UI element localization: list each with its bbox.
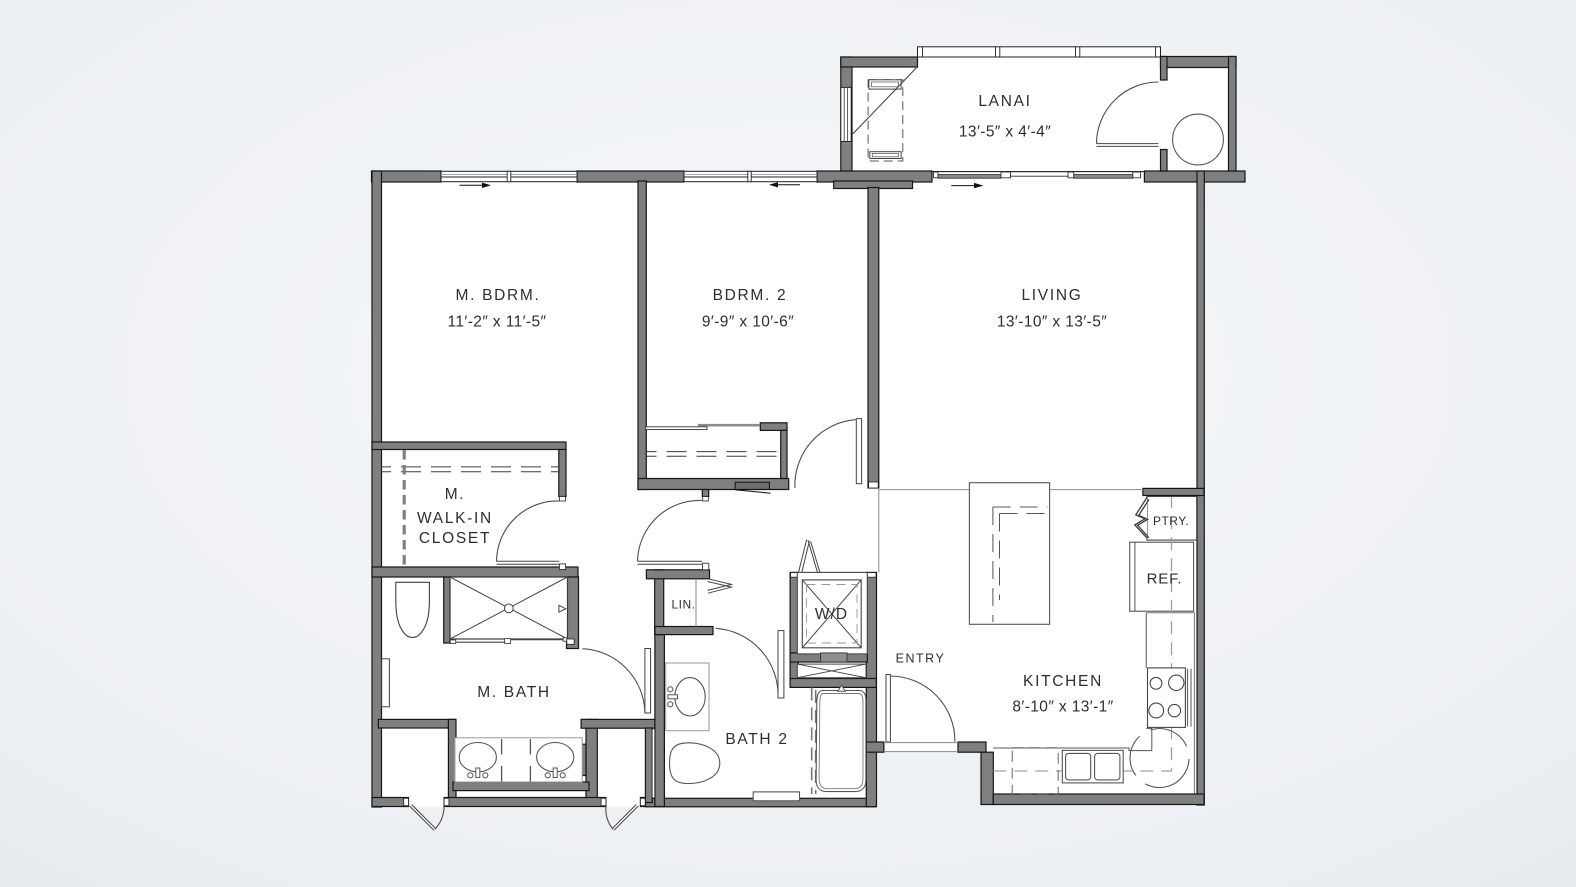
svg-text:LANAI: LANAI — [978, 93, 1031, 110]
svg-text:8′-10″ x 13′-1″: 8′-10″ x 13′-1″ — [1012, 699, 1113, 716]
svg-text:CLOSET: CLOSET — [419, 530, 491, 547]
svg-text:ENTRY: ENTRY — [896, 652, 946, 666]
svg-text:PTRY.: PTRY. — [1153, 514, 1189, 528]
svg-text:W/D: W/D — [815, 606, 848, 623]
svg-text:11′-2″ x 11′-5″: 11′-2″ x 11′-5″ — [448, 314, 547, 331]
svg-text:BDRM. 2: BDRM. 2 — [713, 287, 788, 304]
svg-text:M.: M. — [445, 486, 466, 503]
svg-text:KITCHEN: KITCHEN — [1023, 673, 1103, 690]
svg-text:9′-9″ x 10′-6″: 9′-9″ x 10′-6″ — [702, 314, 794, 331]
svg-text:13′-10″ x 13′-5″: 13′-10″ x 13′-5″ — [997, 314, 1107, 331]
svg-text:LIN.: LIN. — [671, 598, 695, 612]
svg-text:REF.: REF. — [1147, 571, 1183, 588]
svg-text:WALK-IN: WALK-IN — [417, 510, 493, 527]
svg-text:BATH 2: BATH 2 — [725, 731, 788, 748]
svg-text:M. BATH: M. BATH — [477, 684, 551, 701]
svg-text:M. BDRM.: M. BDRM. — [455, 287, 540, 304]
svg-text:LIVING: LIVING — [1021, 287, 1082, 304]
svg-text:13′-5″ x 4′-4″: 13′-5″ x 4′-4″ — [959, 124, 1051, 141]
